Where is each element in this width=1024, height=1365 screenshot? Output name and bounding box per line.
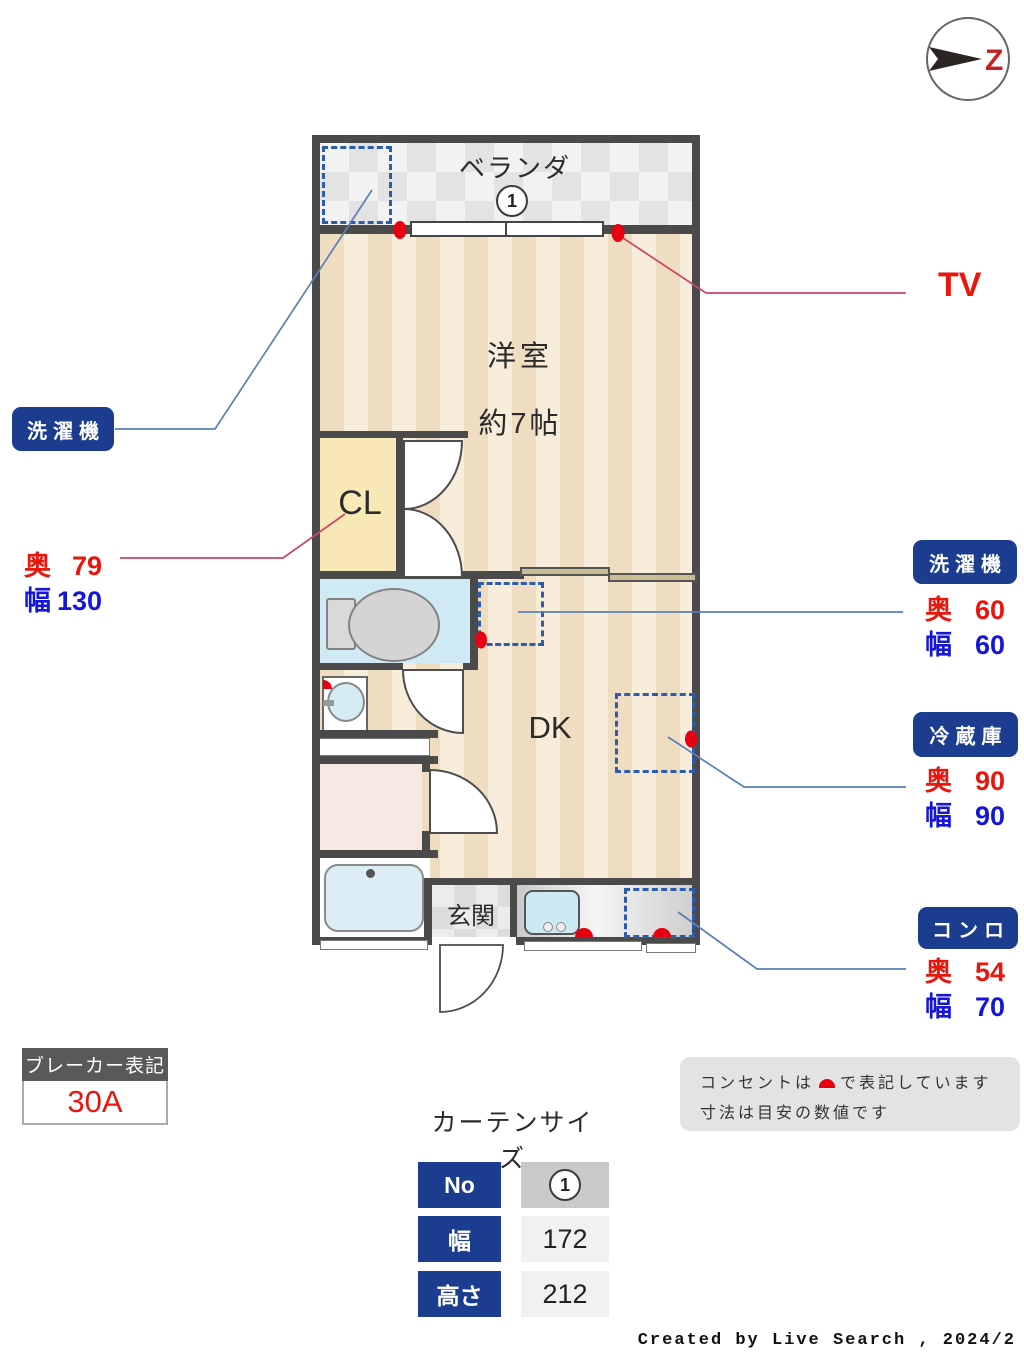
leader-washer-balcony [115, 190, 372, 429]
outlet-marker [685, 731, 697, 748]
closet-door [404, 509, 462, 577]
washer-width-row: 幅 60 [925, 632, 1005, 659]
curtain-width-label: 幅 [418, 1216, 501, 1262]
curtain-no-cell: 1 [521, 1162, 609, 1208]
breaker-header: ブレーカー表記 [22, 1048, 168, 1081]
stove-dims: 奥 54 幅 70 [925, 959, 1005, 1021]
width-label: 幅 [925, 632, 952, 659]
leader-stove [678, 912, 906, 969]
washer-indoor-dims: 奥 60 幅 60 [925, 597, 1005, 659]
outlet-marker [475, 632, 487, 649]
leader-fridge [668, 737, 906, 787]
washer-balcony-tag: 洗濯機 [12, 407, 114, 451]
width-label: 幅 [925, 994, 952, 1021]
leader-closet-dims [120, 514, 345, 558]
legend-note-line2: 寸法は目安の数値です [700, 1099, 1000, 1129]
fridge-tag: 冷蔵庫 [913, 712, 1018, 757]
entrance-label: 玄関 [434, 896, 508, 931]
floor-plan-page: ベランダ 1 洋室 約7帖 CL DK 玄関 Z 洗濯機 奥 79 幅 130 … [0, 0, 1024, 1365]
closet-width-row: 幅 130 [24, 588, 102, 615]
curtain-height-label: 高さ [418, 1271, 501, 1317]
note-line1-post: で表記しています [840, 1075, 992, 1092]
closet-door [404, 441, 462, 509]
washer-depth-row: 奥 60 [925, 597, 1005, 624]
breaker-box: ブレーカー表記 30A [22, 1048, 168, 1125]
credit-text: Created by Live Search , 2024/2 [638, 1331, 1016, 1350]
width-value: 130 [57, 588, 102, 615]
stove-width-row: 幅 70 [925, 994, 1005, 1021]
compass: Z [922, 12, 1014, 104]
legend-note-line1: コンセントはで表記しています [700, 1069, 1000, 1099]
curtain-no-value: 1 [549, 1169, 581, 1201]
depth-value: 54 [975, 959, 1005, 986]
balcony-label: ベランダ [420, 148, 610, 185]
closet-label: CL [330, 484, 390, 523]
depth-value: 90 [975, 768, 1005, 795]
tv-label: TV [938, 266, 981, 305]
toilet-door [403, 670, 463, 733]
depth-label: 奥 [925, 768, 952, 795]
fridge-depth-row: 奥 90 [925, 768, 1005, 795]
washer-indoor-tag: 洗濯機 [913, 540, 1017, 584]
leader-tv [620, 236, 906, 293]
note-line1-pre: コンセントは [700, 1075, 814, 1092]
width-label: 幅 [925, 803, 952, 830]
outlet-marker [612, 224, 625, 242]
room-label: 洋室 [440, 333, 600, 375]
stove-depth-row: 奥 54 [925, 959, 1005, 986]
curtain-width-value: 172 [521, 1216, 609, 1262]
breaker-value: 30A [22, 1081, 168, 1125]
fridge-width-row: 幅 90 [925, 803, 1005, 830]
depth-label: 奥 [925, 959, 952, 986]
fridge-tag-label: 冷蔵庫 [924, 720, 1008, 749]
depth-label: 奥 [925, 597, 952, 624]
outlet-marker [323, 680, 332, 689]
outlet-marker [575, 928, 593, 937]
legend-note: コンセントはで表記しています 寸法は目安の数値です [680, 1057, 1020, 1131]
bathroom-door [430, 770, 497, 833]
depth-label: 奥 [24, 553, 51, 580]
fridge-dims: 奥 90 幅 90 [925, 768, 1005, 830]
depth-value: 60 [975, 597, 1005, 624]
stove-tag: コンロ [918, 907, 1018, 949]
depth-value: 79 [72, 553, 102, 580]
closet-dims: 奥 79 幅 130 [24, 553, 102, 615]
width-value: 60 [975, 632, 1005, 659]
outlet-legend-icon [819, 1079, 835, 1088]
balcony-number-badge: 1 [496, 185, 528, 217]
width-label: 幅 [24, 588, 51, 615]
compass-letter: Z [985, 44, 1003, 77]
outlet-marker [653, 928, 671, 937]
dk-label: DK [520, 710, 580, 746]
width-value: 70 [975, 994, 1005, 1021]
closet-depth-row: 奥 79 [24, 553, 102, 580]
room-size-label: 約7帖 [440, 400, 600, 442]
entry-door [440, 945, 503, 1012]
width-value: 90 [975, 803, 1005, 830]
washer-indoor-tag-label: 洗濯機 [923, 548, 1007, 577]
curtain-height-value: 212 [521, 1271, 609, 1317]
balcony-number: 1 [496, 185, 528, 217]
washer-balcony-tag-label: 洗濯機 [21, 415, 105, 444]
stove-tag-label: コンロ [926, 914, 1010, 943]
curtain-no-label: No [418, 1162, 501, 1208]
outlet-marker [394, 221, 407, 239]
